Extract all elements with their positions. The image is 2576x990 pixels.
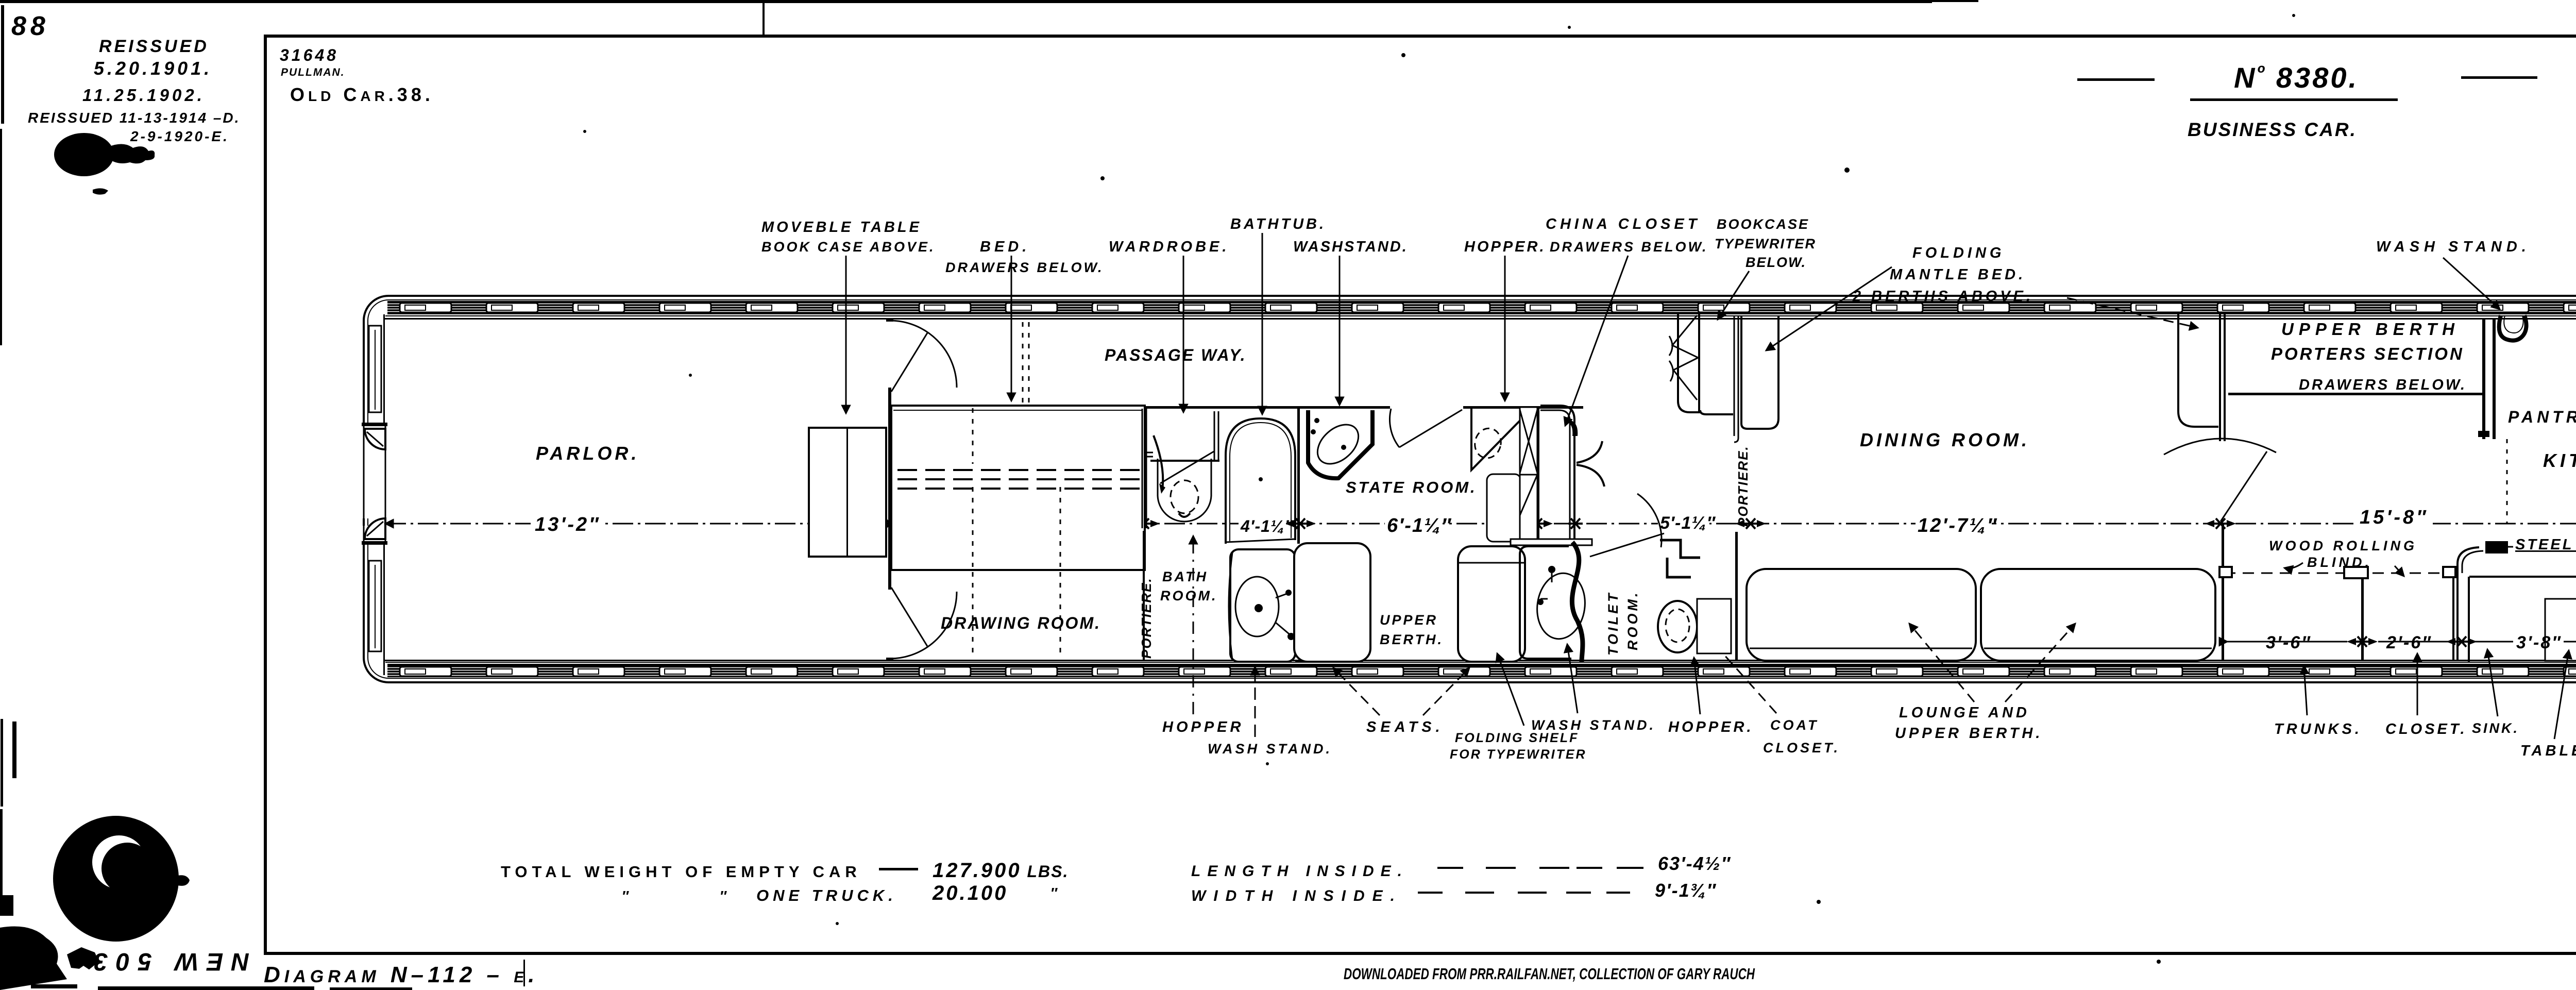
svg-text:STEEL ROLLING BLIND.: STEEL ROLLING BLIND. <box>2515 536 2576 553</box>
svg-text:KITCHEN.: KITCHEN. <box>2543 450 2576 471</box>
svg-text:5′-1¼″: 5′-1¼″ <box>1660 513 1716 533</box>
svg-text:PASSAGE WAY.: PASSAGE WAY. <box>1105 346 1246 364</box>
svg-text:BUSINESS CAR.: BUSINESS CAR. <box>2188 119 2357 140</box>
svg-text:UPPER: UPPER <box>1380 612 1438 628</box>
svg-text:WIDTH INSIDE.: WIDTH INSIDE. <box>1191 887 1402 904</box>
svg-text:SEATS.: SEATS. <box>1366 719 1444 735</box>
svg-text:DRAWING ROOM.: DRAWING ROOM. <box>941 614 1101 632</box>
svg-text:DINING ROOM.: DINING ROOM. <box>1860 429 2030 450</box>
svg-text:127.900 LBS.: 127.900 LBS. <box>933 859 1069 882</box>
svg-text:12′-7¼″: 12′-7¼″ <box>1918 515 1998 536</box>
svg-text:PORTERS SECTION: PORTERS SECTION <box>2271 344 2464 363</box>
svg-text:Nº 8380.: Nº 8380. <box>2234 61 2359 94</box>
svg-text:FOR TYPEWRITER: FOR TYPEWRITER <box>1450 747 1587 762</box>
svg-text:BLIND.: BLIND. <box>2307 555 2372 570</box>
svg-text:REISSUED 11-13-1914 –D.: REISSUED 11-13-1914 –D. <box>28 110 240 126</box>
svg-text:PANTRY: PANTRY <box>2508 408 2576 426</box>
svg-text:WARDROBE.: WARDROBE. <box>1109 239 1229 255</box>
svg-text:2 BERTHS ABOVE.: 2 BERTHS ABOVE. <box>1852 288 2033 305</box>
svg-text:ONE TRUCK.: ONE TRUCK. <box>756 886 897 904</box>
svg-text:TABLE.: TABLE. <box>2520 743 2576 759</box>
svg-text:HOPPER: HOPPER <box>1162 719 1244 735</box>
svg-text:HOPPER.: HOPPER. <box>1668 719 1754 735</box>
svg-text:WOOD ROLLING: WOOD ROLLING <box>2269 538 2417 553</box>
svg-text:LENGTH INSIDE.: LENGTH INSIDE. <box>1191 863 1409 880</box>
svg-text:SINK.: SINK. <box>2472 720 2519 736</box>
svg-text:11.25.1902.: 11.25.1902. <box>82 86 205 105</box>
svg-text:CHINA CLOSET: CHINA CLOSET <box>1546 216 1700 232</box>
svg-text:88: 88 <box>11 11 49 41</box>
svg-text:BATHTUB.: BATHTUB. <box>1230 216 1326 232</box>
svg-text:″: ″ <box>1051 885 1058 901</box>
svg-text:FOLDING SHELF: FOLDING SHELF <box>1455 731 1579 745</box>
svg-text:WASH STAND.: WASH STAND. <box>2376 239 2531 255</box>
svg-text:WASH STAND.: WASH STAND. <box>1531 717 1656 733</box>
svg-text:CLOSET.: CLOSET. <box>1763 740 1840 756</box>
svg-text:PORTIERE.: PORTIERE. <box>1735 445 1751 527</box>
svg-text:2-9-1920-E.: 2-9-1920-E. <box>130 128 229 144</box>
svg-text:2′-6″: 2′-6″ <box>2386 633 2432 652</box>
svg-text:BED.: BED. <box>980 239 1030 255</box>
svg-text:DRAWERS BELOW.: DRAWERS BELOW. <box>1550 239 1708 255</box>
svg-text:6′-1¼″: 6′-1¼″ <box>1387 515 1452 536</box>
svg-text:STATE ROOM.: STATE ROOM. <box>1346 478 1477 496</box>
svg-text:LOUNGE AND: LOUNGE AND <box>1899 704 2030 721</box>
svg-text:″: ″ <box>720 888 730 904</box>
svg-text:MANTLE BED.: MANTLE BED. <box>1890 266 2026 283</box>
svg-text:COAT: COAT <box>1770 717 1819 733</box>
svg-text:9′-1¾″: 9′-1¾″ <box>1655 880 1717 901</box>
svg-text:TOILET: TOILET <box>1605 591 1621 656</box>
svg-text:REISSUED: REISSUED <box>99 37 209 56</box>
svg-text:DRAWERS BELOW.: DRAWERS BELOW. <box>945 260 1104 275</box>
svg-text:PARLOR.: PARLOR. <box>536 443 639 464</box>
svg-text:TRUNKS.: TRUNKS. <box>2274 721 2362 737</box>
svg-text:NEW 503.: NEW 503. <box>71 948 249 975</box>
svg-text:4′-1¼″: 4′-1¼″ <box>1240 517 1294 535</box>
svg-text:FOLDING: FOLDING <box>1912 245 2005 261</box>
svg-text:DOWNLOADED FROM PRR.RAILFAN.NE: DOWNLOADED FROM PRR.RAILFAN.NET, COLLECT… <box>1344 965 1755 983</box>
svg-text:BELOW.: BELOW. <box>1745 255 1806 270</box>
svg-text:UPPER BERTH: UPPER BERTH <box>2281 320 2460 339</box>
svg-text:5.20.1901.: 5.20.1901. <box>94 58 212 79</box>
svg-text:20.100: 20.100 <box>932 882 1008 904</box>
svg-text:CLOSET.: CLOSET. <box>2385 721 2467 737</box>
svg-text:63′-4½″: 63′-4½″ <box>1658 853 1731 874</box>
svg-text:ROOM.: ROOM. <box>1625 591 1640 651</box>
svg-text:MOVEBLE TABLE: MOVEBLE TABLE <box>761 219 922 236</box>
svg-text:TOTAL WEIGHT OF EMPTY CAR: TOTAL WEIGHT OF EMPTY CAR <box>501 863 861 881</box>
svg-text:TYPEWRITER: TYPEWRITER <box>1715 236 1816 251</box>
svg-text:UPPER BERTH.: UPPER BERTH. <box>1895 725 2043 742</box>
svg-text:BATH: BATH <box>1162 569 1208 584</box>
svg-text:BOOKCASE: BOOKCASE <box>1717 216 1809 232</box>
svg-text:3′-8″: 3′-8″ <box>2516 633 2562 652</box>
svg-text:PORTIERE.: PORTIERE. <box>1139 577 1154 659</box>
svg-text:ROOM.: ROOM. <box>1160 588 1218 603</box>
svg-text:WASH STAND.: WASH STAND. <box>1208 741 1332 757</box>
svg-text:WASHSTAND.: WASHSTAND. <box>1293 239 1408 255</box>
svg-text:31648: 31648 <box>280 46 338 64</box>
svg-text:PULLMAN.: PULLMAN. <box>281 66 345 78</box>
svg-text:DRAWERS BELOW.: DRAWERS BELOW. <box>2299 377 2467 393</box>
svg-text:″: ″ <box>622 888 632 904</box>
svg-text:BOOK CASE ABOVE.: BOOK CASE ABOVE. <box>761 239 936 255</box>
svg-text:15′-8″: 15′-8″ <box>2360 507 2428 528</box>
svg-text:HOPPER.: HOPPER. <box>1464 239 1546 255</box>
svg-text:3′-6″: 3′-6″ <box>2266 633 2312 652</box>
svg-text:13′-2″: 13′-2″ <box>535 514 600 535</box>
svg-text:BERTH.: BERTH. <box>1380 632 1444 647</box>
